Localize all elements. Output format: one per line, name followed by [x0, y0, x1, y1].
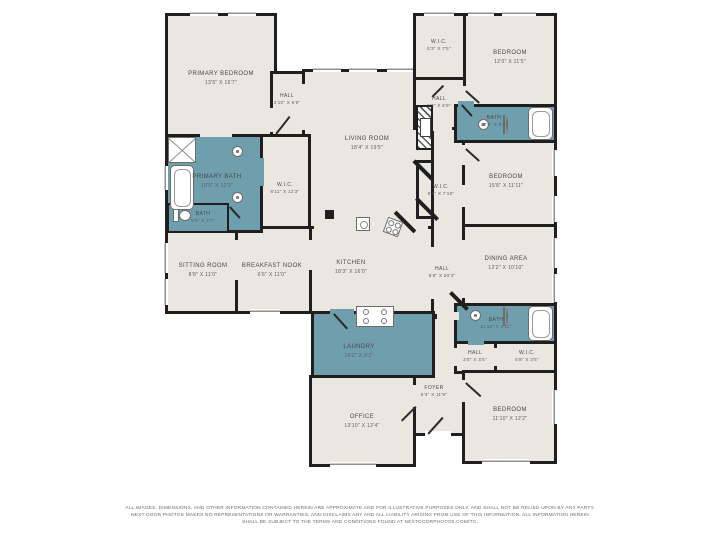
door-opening: [411, 385, 418, 407]
window: [330, 462, 376, 467]
column-fixture: [325, 210, 334, 219]
disclaimer-line-2: NEXT DOOR PHOTOS MAKES NO REPRESENTATION…: [80, 513, 640, 520]
room-bedroom-right: [459, 140, 557, 230]
bathtub-fixture: [528, 306, 553, 341]
room-wic-left: [260, 134, 311, 233]
window: [552, 150, 557, 176]
bathtub-fixture: [170, 165, 194, 210]
window: [228, 11, 256, 16]
disclaimer-text: ALL IMAGES, DIMENSIONS, AND OTHER INFORM…: [80, 506, 640, 527]
door-opening: [270, 108, 276, 132]
toilet-fixture: [503, 116, 508, 134]
disclaimer-line-1: ALL IMAGES, DIMENSIONS, AND OTHER INFORM…: [80, 506, 640, 513]
window: [552, 274, 557, 302]
door-opening: [461, 185, 467, 207]
window: [552, 238, 557, 268]
window: [190, 11, 218, 16]
sink-fixture: [470, 310, 481, 321]
window: [349, 67, 377, 72]
room-primary-bedroom: [165, 13, 277, 140]
door-opening: [493, 348, 498, 366]
bathtub-fixture: [528, 107, 553, 140]
sink-fixture: [478, 119, 489, 130]
window: [468, 11, 494, 16]
room-kitchen: [309, 226, 435, 314]
range-fixture: [356, 306, 394, 327]
door-opening: [308, 240, 314, 270]
window: [250, 309, 280, 314]
room-wic-top: [413, 13, 466, 80]
room-bedroom-bottom-right: [462, 370, 557, 464]
door-opening: [432, 124, 452, 131]
sink-fixture: [232, 146, 243, 157]
fireplace-fixture: [416, 105, 433, 150]
toilet-fixture: [173, 209, 191, 222]
disclaimer-line-3: SHALL BE SUBJECT TO THE TERMS AND CONDIT…: [80, 520, 640, 527]
toilet-fixture: [503, 308, 508, 326]
door-opening: [258, 158, 264, 186]
window: [552, 196, 557, 222]
window: [163, 279, 168, 305]
window: [502, 11, 536, 16]
window: [424, 11, 454, 16]
window: [482, 459, 530, 464]
door-opening: [299, 84, 306, 130]
room-bedroom-top-right: [463, 13, 557, 108]
room-office: [309, 375, 416, 467]
door-opening: [452, 348, 458, 366]
floor-plan: PRIMARY BEDROOM13'5" X 16'7" HALL3'10" X…: [0, 0, 720, 540]
window: [163, 166, 168, 190]
kitchen-island-sink-fixture: [356, 217, 370, 231]
shower-fixture: [168, 137, 196, 163]
window: [387, 67, 413, 72]
door-opening: [200, 131, 232, 137]
door-opening: [468, 340, 484, 345]
window: [552, 390, 557, 424]
door-opening: [233, 240, 239, 280]
door-opening: [459, 240, 466, 298]
room-breakfast-nook: [235, 226, 312, 314]
room-sitting-room: [165, 226, 238, 314]
sink-fixture: [232, 192, 243, 203]
window: [163, 243, 168, 273]
door-opening: [458, 101, 474, 107]
door-opening: [428, 247, 436, 299]
window: [313, 67, 341, 72]
door-opening: [437, 312, 459, 320]
